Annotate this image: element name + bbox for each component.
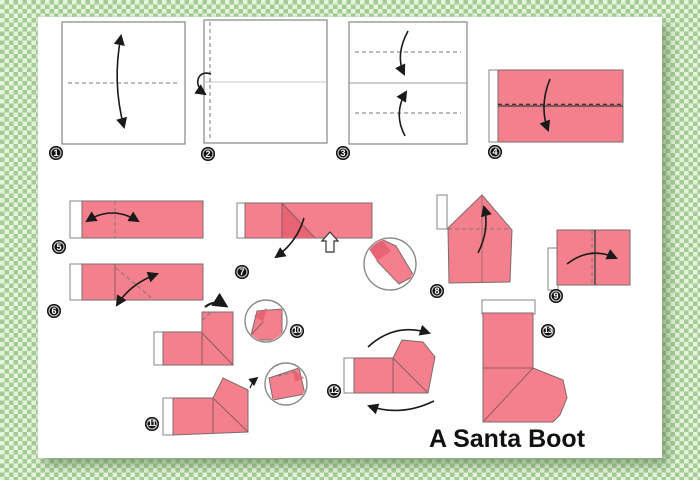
step-badge-1: 1 [49, 146, 63, 160]
step-badge-3: 3 [336, 146, 350, 160]
step-12-diagram [344, 330, 435, 411]
step-badge-8: 8 [430, 284, 444, 298]
step-2-diagram [198, 20, 327, 143]
step-4-diagram [489, 70, 623, 142]
rotate-arrow-bottom-icon [369, 401, 434, 410]
step-badge-2: 2 [201, 147, 215, 161]
step-3-diagram [349, 22, 467, 144]
step-badge-6: 6 [47, 304, 61, 318]
corner-fold-arrow-icon [205, 303, 226, 307]
step-badge-10: 10 [290, 324, 304, 338]
detail-circle-10 [245, 300, 287, 342]
step-7-diagram [237, 203, 372, 257]
step-1-diagram [62, 22, 185, 144]
step-badge-12: 12 [327, 384, 341, 398]
diagram-title: A Santa Boot [429, 425, 639, 454]
step-badge-4: 4 [488, 145, 502, 159]
step-badge-7: 7 [235, 265, 249, 279]
instruction-sheet: 1 2 3 4 5 6 7 8 9 10 11 12 13 A Santa Bo… [38, 17, 662, 458]
tuck-corner-arrow-icon [250, 378, 257, 388]
origami-diagram [38, 17, 662, 458]
step-badge-13: 13 [541, 324, 555, 338]
step-badge-11: 11 [145, 417, 159, 431]
step-6-diagram [70, 264, 203, 305]
step-10-diagram [154, 303, 233, 365]
detail-circle-7 [364, 238, 416, 290]
step-badge-5: 5 [52, 240, 66, 254]
detail-circle-11 [265, 363, 307, 405]
step-13-diagram [482, 300, 567, 422]
step-badge-9: 9 [549, 289, 563, 303]
origami-instruction-page: { "title": "A Santa Boot", "steps": [ {"… [0, 0, 700, 480]
step-11-diagram [163, 378, 257, 435]
step-9-diagram [548, 230, 630, 290]
step-8-diagram [437, 195, 512, 283]
step-5-diagram [70, 201, 203, 238]
